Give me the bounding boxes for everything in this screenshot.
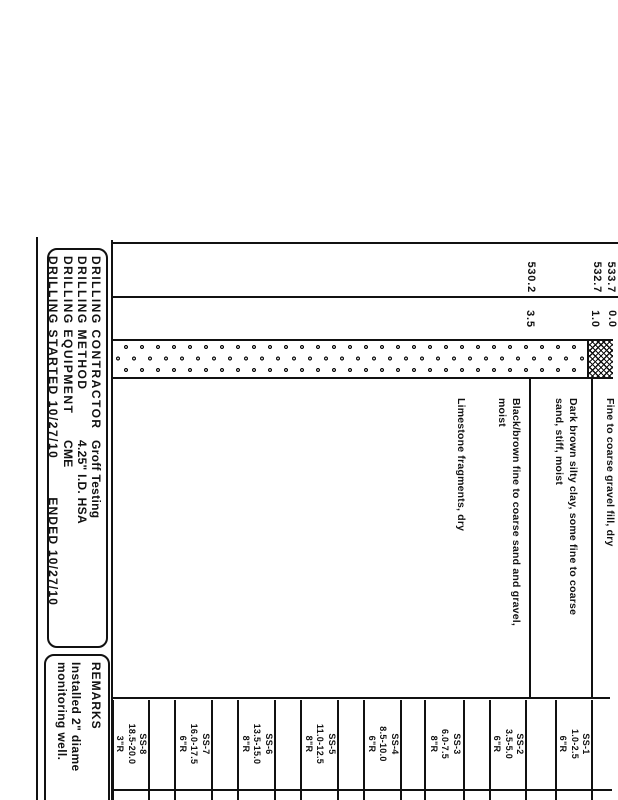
depth-label: 1.0 xyxy=(589,299,601,339)
sheet-bottom-edge-line xyxy=(36,237,38,800)
sample-recovery: 8"R xyxy=(427,736,439,753)
drilling-info-label: DRILLING CONTRACTOR xyxy=(89,256,103,440)
sample-id: SS-4 xyxy=(388,733,400,754)
drilling-started-label: DRILLING STARTED 10/27/10 xyxy=(46,256,60,459)
sample-interval: 11.0-12.5 xyxy=(314,724,326,764)
drilling-info-value: 4.25" I.D. HSA xyxy=(75,440,89,524)
sample-box: SS-8 18.5-20.0 3"R xyxy=(112,700,150,800)
remarks-box: REMARKS Installed 2" diame monitoring we… xyxy=(44,654,110,800)
elevation-label: 530.2 xyxy=(525,243,537,293)
sample-interval: 13.5-15.0 xyxy=(251,724,263,765)
sample-id: SS-8 xyxy=(137,733,149,754)
gravel-pattern-column xyxy=(112,339,613,379)
remarks-line: Installed 2" diame xyxy=(69,662,83,800)
sample-id: SS-7 xyxy=(199,733,211,754)
elevation-label: 532.7 xyxy=(591,243,603,293)
graphic-column-right-line xyxy=(111,377,613,379)
sample-id: SS-6 xyxy=(262,733,274,754)
sample-recovery: 6"R xyxy=(176,736,188,753)
drilling-info-row: DRILLING EQUIPMENT CME xyxy=(60,256,74,640)
drilling-info-label: DRILLING EQUIPMENT xyxy=(60,256,74,440)
sample-box: SS-5 11.0-12.5 8"R xyxy=(300,700,339,800)
sample-recovery: 6"R xyxy=(557,736,569,753)
sample-id: SS-2 xyxy=(514,733,526,754)
sample-recovery: 3"R xyxy=(114,736,126,753)
sample-interval: 16.0-17.5 xyxy=(188,724,200,765)
boring-log-page-rotated: 533.7 532.7 530.2 0.0 1.0 3.5 Fine to co… xyxy=(0,0,618,800)
drilling-info-box: DRILLING CONTRACTOR Groff Testing DRILLI… xyxy=(47,248,108,648)
sample-recovery: 8"R xyxy=(302,736,314,753)
drilling-ended-label: ENDED 10/27/10 xyxy=(46,497,60,606)
sample-interval: 1.0-2.5 xyxy=(568,729,580,759)
sample-box: SS-4 8.5-10.0 6"R xyxy=(363,700,402,800)
stratum-boundary-line-1ft xyxy=(591,377,593,698)
sample-recovery: 6"R xyxy=(491,736,503,753)
drilling-info-row: DRILLING STARTED 10/27/10 ENDED 10/27/10 xyxy=(46,256,60,640)
elevation-label: 533.7 xyxy=(605,243,617,293)
drilling-info-value: CME xyxy=(60,440,74,468)
soil-description: Black/brown fine to coarse sand and grav… xyxy=(510,398,522,626)
soil-description: moist xyxy=(496,398,508,427)
gravel-fill-crosshatch-symbol xyxy=(587,339,613,379)
sample-interval: 18.5-20.0 xyxy=(125,724,137,765)
sample-id: SS-3 xyxy=(450,733,462,754)
sample-id: SS-5 xyxy=(325,733,337,754)
sample-interval: 3.5-5.0 xyxy=(502,729,514,759)
sample-column-left-line xyxy=(111,697,610,699)
drilling-info-value: Groff Testing xyxy=(89,440,103,518)
sample-box: SS-3 6.0-7.5 8"R xyxy=(424,700,465,800)
depth-label: 3.5 xyxy=(524,299,536,339)
soil-description: Limestone fragments, dry xyxy=(455,398,467,531)
soil-description: Dark brown silty clay, some fine to coar… xyxy=(567,398,579,615)
sample-id: SS-1 xyxy=(580,733,592,754)
elevation-column-left-line xyxy=(111,242,618,244)
graphic-column-left-line xyxy=(111,339,613,341)
sample-box: SS-6 13.5-15.0 8"R xyxy=(237,700,276,800)
depth-label: 0.0 xyxy=(606,299,618,339)
drilling-info-label: DRILLING METHOD xyxy=(75,256,89,440)
sample-box: SS-7 16.0-17.5 6"R xyxy=(174,700,213,800)
sample-recovery: 8"R xyxy=(239,736,251,753)
drilling-info-row: DRILLING METHOD 4.25" I.D. HSA xyxy=(75,256,89,640)
remarks-title: REMARKS xyxy=(89,662,103,800)
soil-description: Fine to coarse gravel fill, dry xyxy=(604,398,616,547)
remarks-line: monitoring well. xyxy=(55,662,69,800)
drilling-info-row: DRILLING CONTRACTOR Groff Testing xyxy=(89,256,103,640)
sample-interval: 6.0-7.5 xyxy=(439,729,451,759)
scanned-boring-log-sheet: 533.7 532.7 530.2 0.0 1.0 3.5 Fine to co… xyxy=(0,0,618,800)
depth-column-left-line xyxy=(111,296,618,298)
soil-description: sand, stiff, moist xyxy=(553,398,565,485)
stratum-boundary-line-3point5ft xyxy=(529,377,531,698)
sample-interval: 8.5-10.0 xyxy=(377,726,389,761)
sample-recovery: 6"R xyxy=(365,736,377,753)
sample-box: SS-2 3.5-5.0 6"R xyxy=(489,700,527,800)
sample-box: SS-1 1.0-2.5 6"R xyxy=(555,700,593,800)
